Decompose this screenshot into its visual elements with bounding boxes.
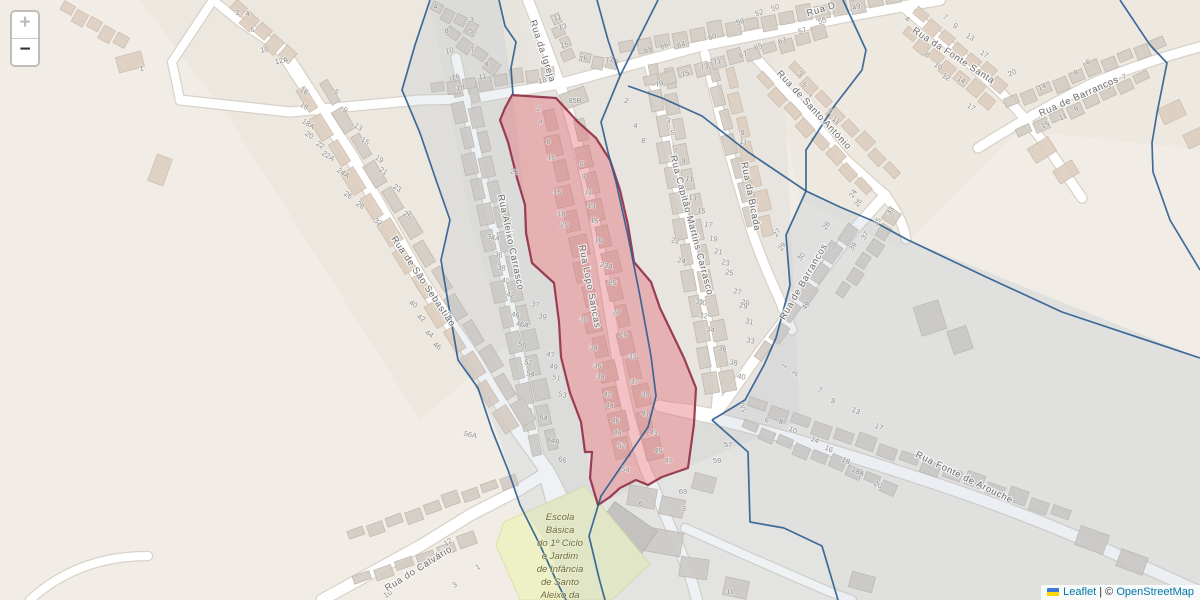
house-number: 85B bbox=[568, 96, 581, 105]
house-number: 11 bbox=[726, 587, 734, 596]
school-label-line: Aleixo da bbox=[539, 590, 579, 600]
school-label-line: Básica bbox=[546, 525, 575, 536]
building bbox=[690, 27, 707, 42]
ukraine-flag-icon bbox=[1047, 588, 1059, 596]
house-number: 69 bbox=[679, 487, 687, 496]
zoom-in-button[interactable]: + bbox=[12, 12, 38, 39]
zoom-control: + − bbox=[10, 10, 40, 67]
school-label-line: Escola bbox=[546, 512, 575, 523]
attribution-separator: | bbox=[1099, 586, 1102, 598]
copyright-symbol: © bbox=[1105, 586, 1113, 598]
zoom-out-button[interactable]: − bbox=[12, 39, 38, 65]
attribution-bar: Leaflet | © OpenStreetMap bbox=[1041, 585, 1200, 600]
leaflet-link[interactable]: Leaflet bbox=[1063, 586, 1096, 598]
school-label-line: do 1º Ciclo bbox=[537, 538, 583, 549]
school-label-line: e Jardim bbox=[542, 551, 579, 562]
school-label-line: de Infância bbox=[537, 564, 583, 575]
house-number: 6 bbox=[639, 499, 643, 508]
house-number: 59 bbox=[713, 456, 721, 465]
house-number: 57 bbox=[724, 440, 732, 449]
school-label-line: de Santo bbox=[541, 577, 579, 588]
house-number: 3 bbox=[682, 504, 686, 513]
building bbox=[761, 15, 778, 32]
map-canvas[interactable]: EscolaBásicado 1º Cicloe Jardimde Infânc… bbox=[0, 0, 1200, 600]
building bbox=[591, 56, 604, 70]
building bbox=[778, 11, 794, 26]
openstreetmap-link[interactable]: OpenStreetMap bbox=[1116, 586, 1194, 598]
map-svg: EscolaBásicado 1º Cicloe Jardimde Infânc… bbox=[0, 0, 1200, 600]
